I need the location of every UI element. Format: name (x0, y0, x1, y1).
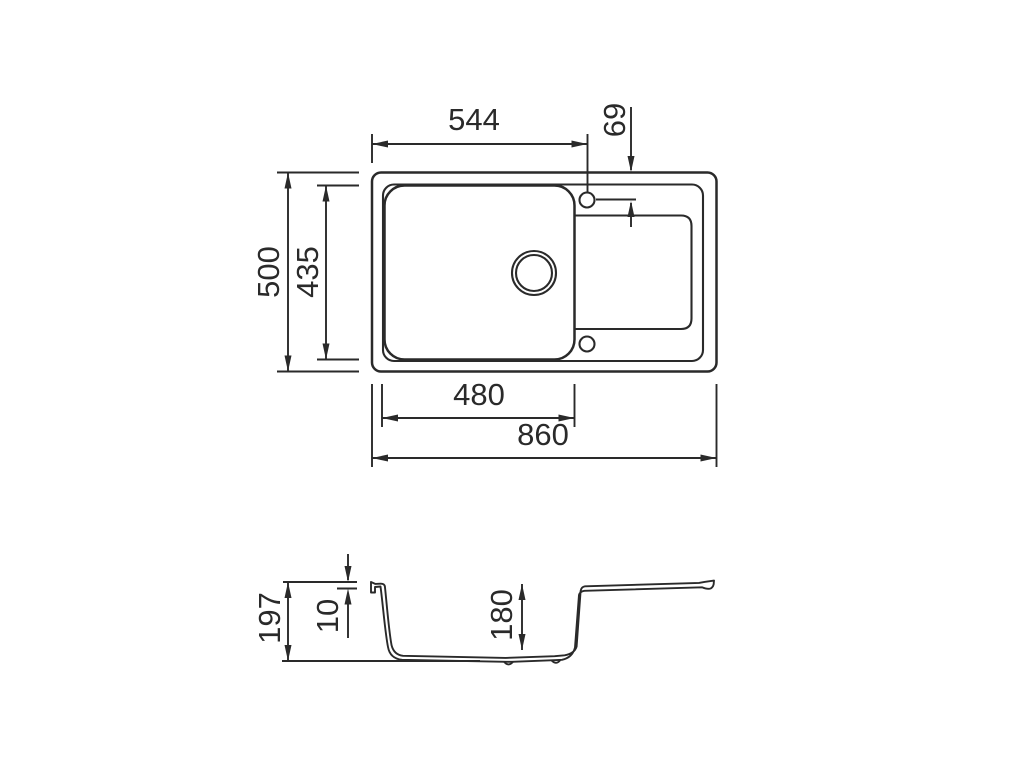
arrowhead-up (323, 186, 330, 202)
arrowhead-down (345, 566, 352, 582)
dim-bowl-depth: 435 (290, 186, 359, 360)
arrowhead-left (372, 141, 388, 148)
dim-label-180: 180 (484, 589, 519, 641)
arrowhead-up (345, 589, 352, 605)
arrowhead-up (285, 173, 292, 189)
arrowhead-right (701, 455, 717, 462)
arrowhead-down (285, 645, 292, 661)
dim-label-500: 500 (251, 246, 286, 298)
dim-label-860: 860 (517, 417, 569, 452)
drainer-board (575, 216, 692, 330)
arrowhead-down (628, 156, 635, 172)
section-profile (371, 581, 714, 662)
dim-label-480: 480 (453, 377, 505, 412)
tap-hole-bottom (580, 337, 595, 352)
drawing-canvas: 544 69 500 435 480 (0, 0, 1024, 768)
sink-outer-edge (372, 173, 717, 372)
arrowhead-up (519, 584, 526, 600)
sink-top-view (372, 173, 717, 372)
main-bowl (385, 186, 575, 360)
dim-tap-hole-from-left: 544 (372, 102, 588, 192)
arrowhead-down (285, 356, 292, 372)
arrowhead-right (572, 141, 588, 148)
arrowhead-down (323, 344, 330, 360)
dim-rim-height: 10 (310, 554, 357, 638)
sink-rim (383, 185, 703, 362)
arrowhead-left (372, 455, 388, 462)
dim-label-69: 69 (597, 103, 632, 137)
dim-bowl-inner-depth: 180 (484, 584, 526, 650)
tap-hole-top (580, 193, 595, 208)
dim-label-544: 544 (448, 102, 500, 137)
drain-hole (512, 251, 556, 295)
dim-label-10: 10 (310, 599, 345, 633)
arrowhead-down (519, 634, 526, 650)
dim-label-435: 435 (290, 246, 325, 298)
drain-hole-inner (516, 255, 552, 291)
dim-label-197: 197 (252, 592, 287, 644)
technical-drawing: 544 69 500 435 480 (0, 0, 1024, 768)
dim-overall-width: 860 (372, 384, 717, 467)
dim-tap-hole-from-top: 69 (597, 103, 635, 227)
arrowhead-left (382, 415, 398, 422)
